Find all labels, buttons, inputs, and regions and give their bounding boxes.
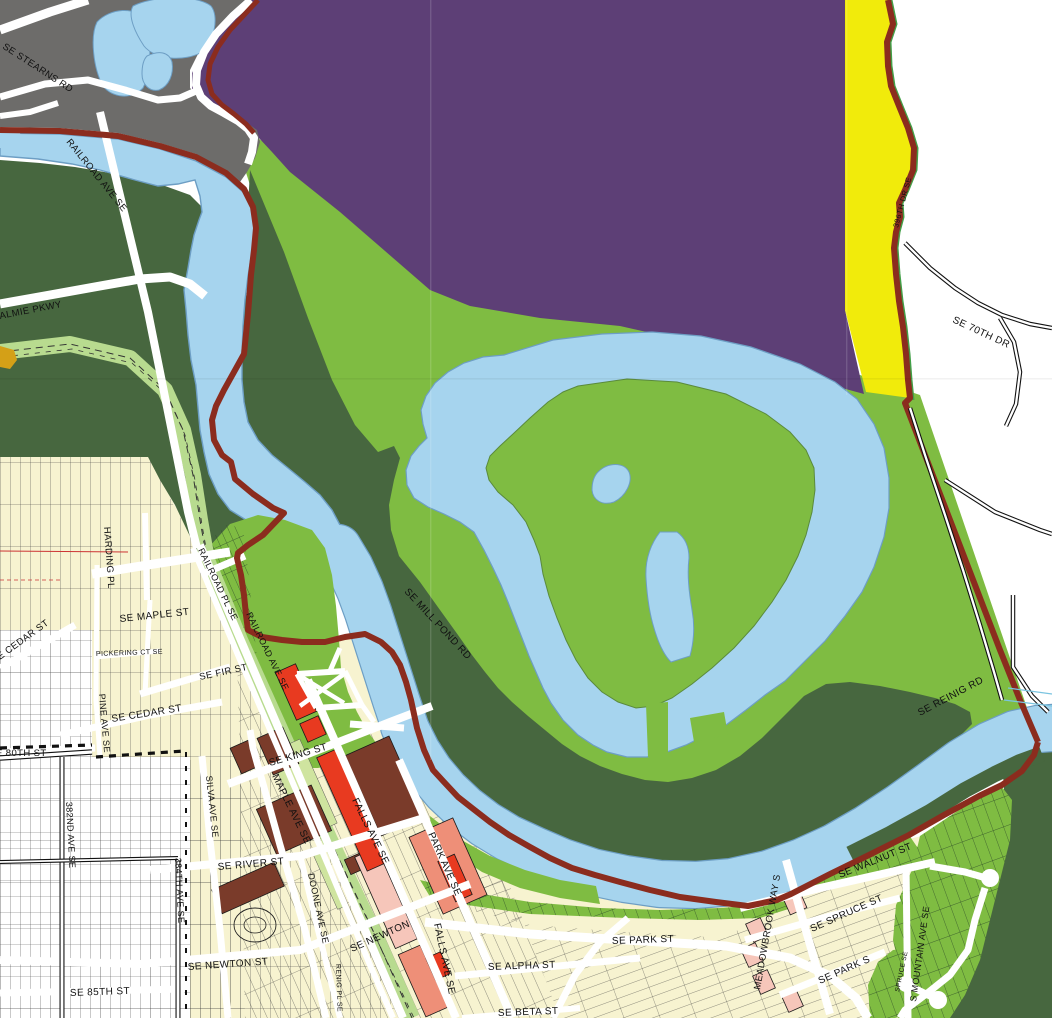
svg-text:SE PARK ST: SE PARK ST xyxy=(612,934,675,947)
svg-text:E 80TH ST: E 80TH ST xyxy=(0,748,47,759)
svg-text:SE 85TH ST: SE 85TH ST xyxy=(70,986,130,999)
svg-text:SE BETA ST: SE BETA ST xyxy=(498,1006,559,1018)
